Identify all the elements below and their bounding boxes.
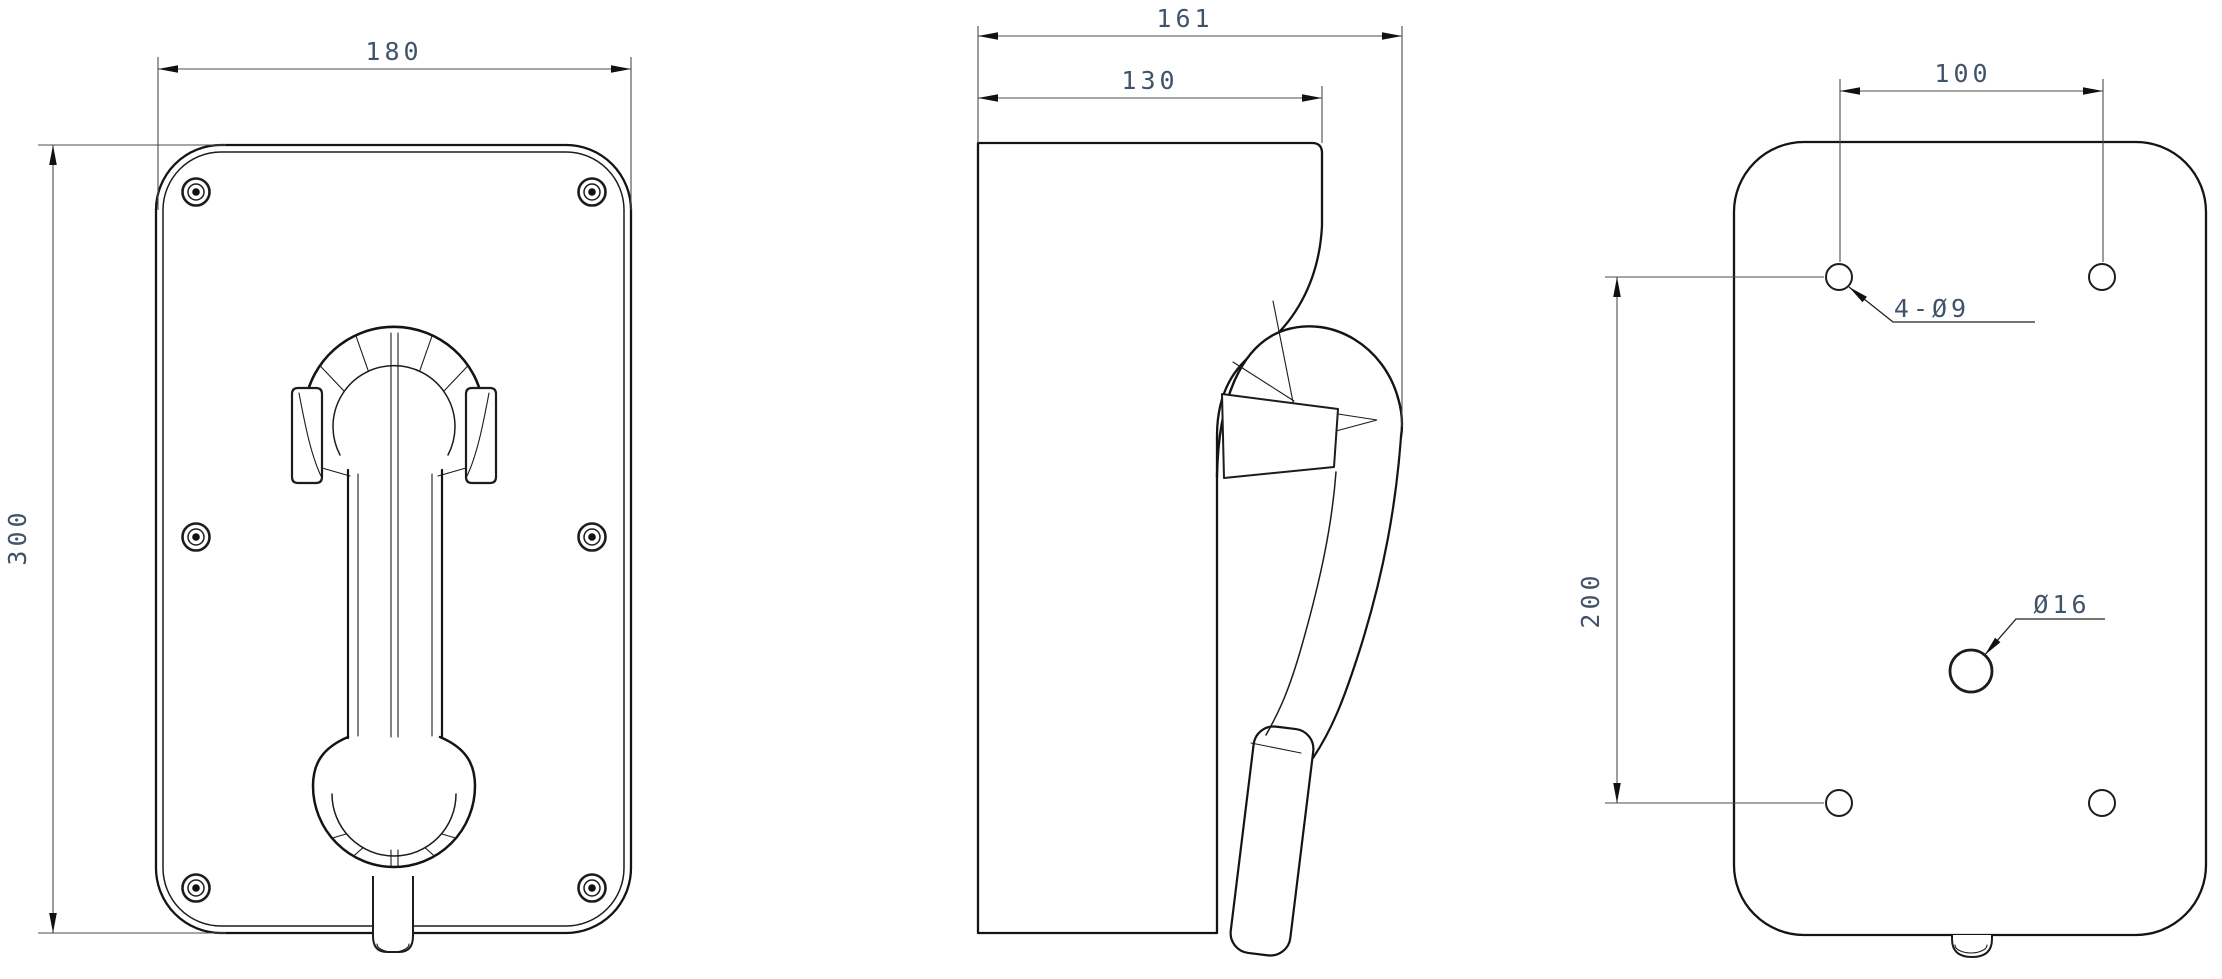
dim-text-300: 300 <box>3 508 32 565</box>
label-text-d16: Ø16 <box>2033 590 2090 619</box>
dim-text-180: 180 <box>365 37 422 66</box>
rear-bottom-gland <box>1952 935 1992 957</box>
rear-view <box>1734 142 2206 957</box>
dim-text-161: 161 <box>1156 4 1213 33</box>
dim-side-body-depth: 130 <box>978 66 1322 143</box>
engineering-drawing-sheet: 180 300 161 130 <box>0 0 2222 979</box>
side-view <box>978 143 1402 958</box>
label-text-4-d9: 4-Ø9 <box>1894 294 1970 323</box>
rear-plate-outline <box>1734 142 2206 935</box>
front-view <box>156 145 631 952</box>
dim-text-100: 100 <box>1934 59 1991 88</box>
cradle-hook-side <box>1222 394 1338 478</box>
cable-gland <box>373 876 413 952</box>
dim-text-130: 130 <box>1121 66 1178 95</box>
handset-side <box>1217 301 1402 958</box>
mouthpiece-side <box>1228 724 1315 958</box>
dim-text-200: 200 <box>1576 571 1605 628</box>
